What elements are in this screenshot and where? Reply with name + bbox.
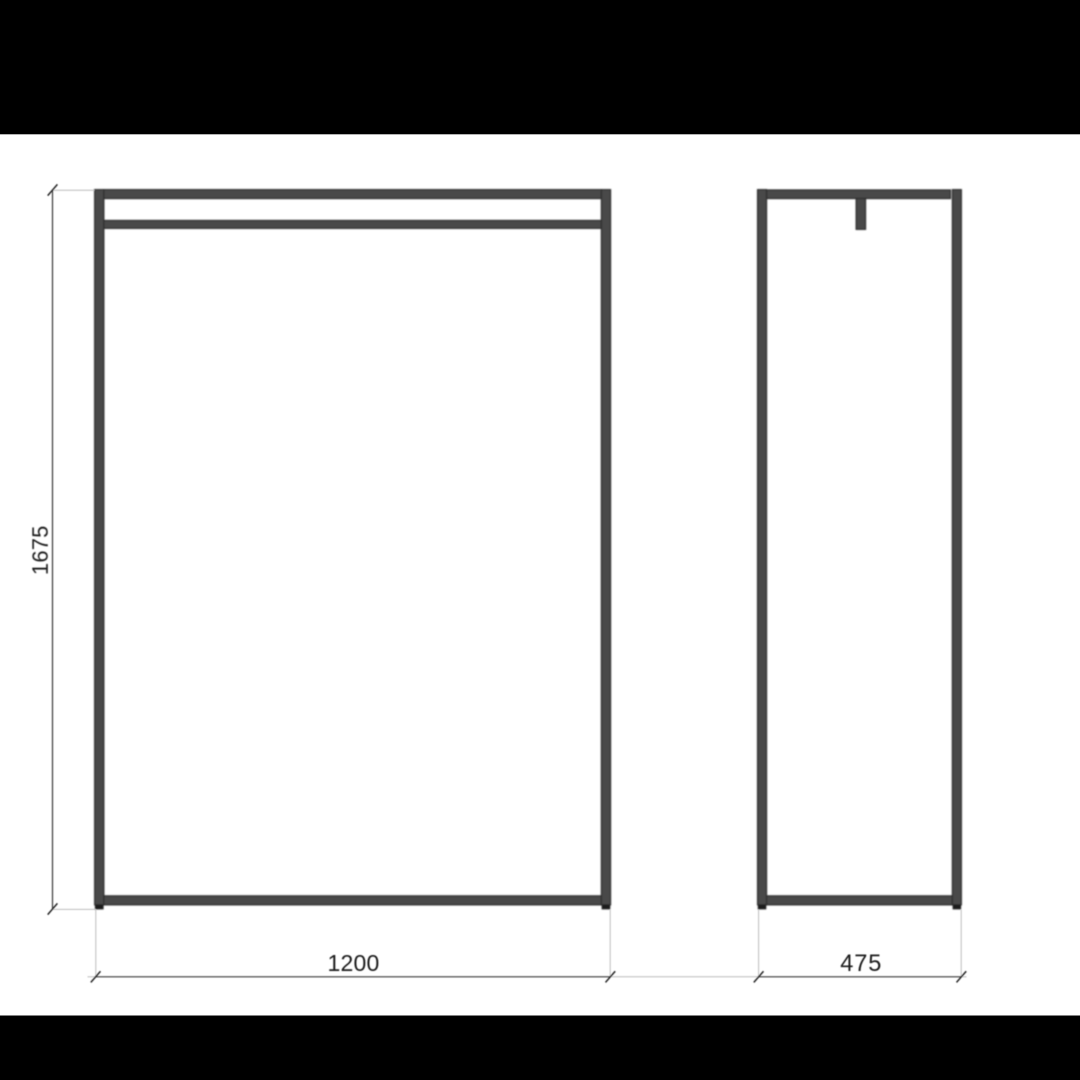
svg-text:1675: 1675 bbox=[28, 525, 53, 575]
svg-text:1200: 1200 bbox=[328, 950, 380, 976]
svg-text:475: 475 bbox=[840, 951, 882, 977]
